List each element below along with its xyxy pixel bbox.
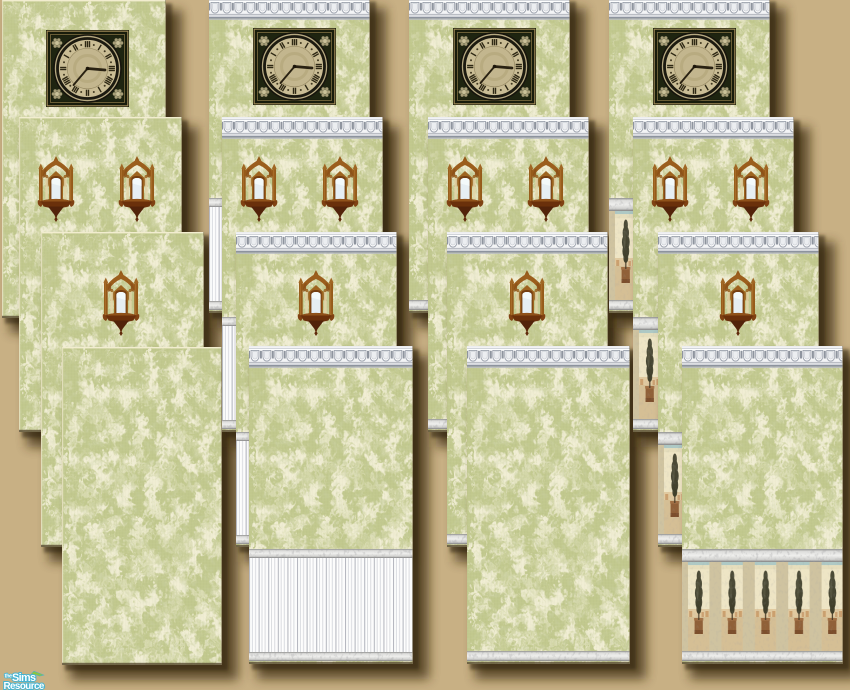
svg-text:Resource: Resource bbox=[4, 681, 45, 690]
